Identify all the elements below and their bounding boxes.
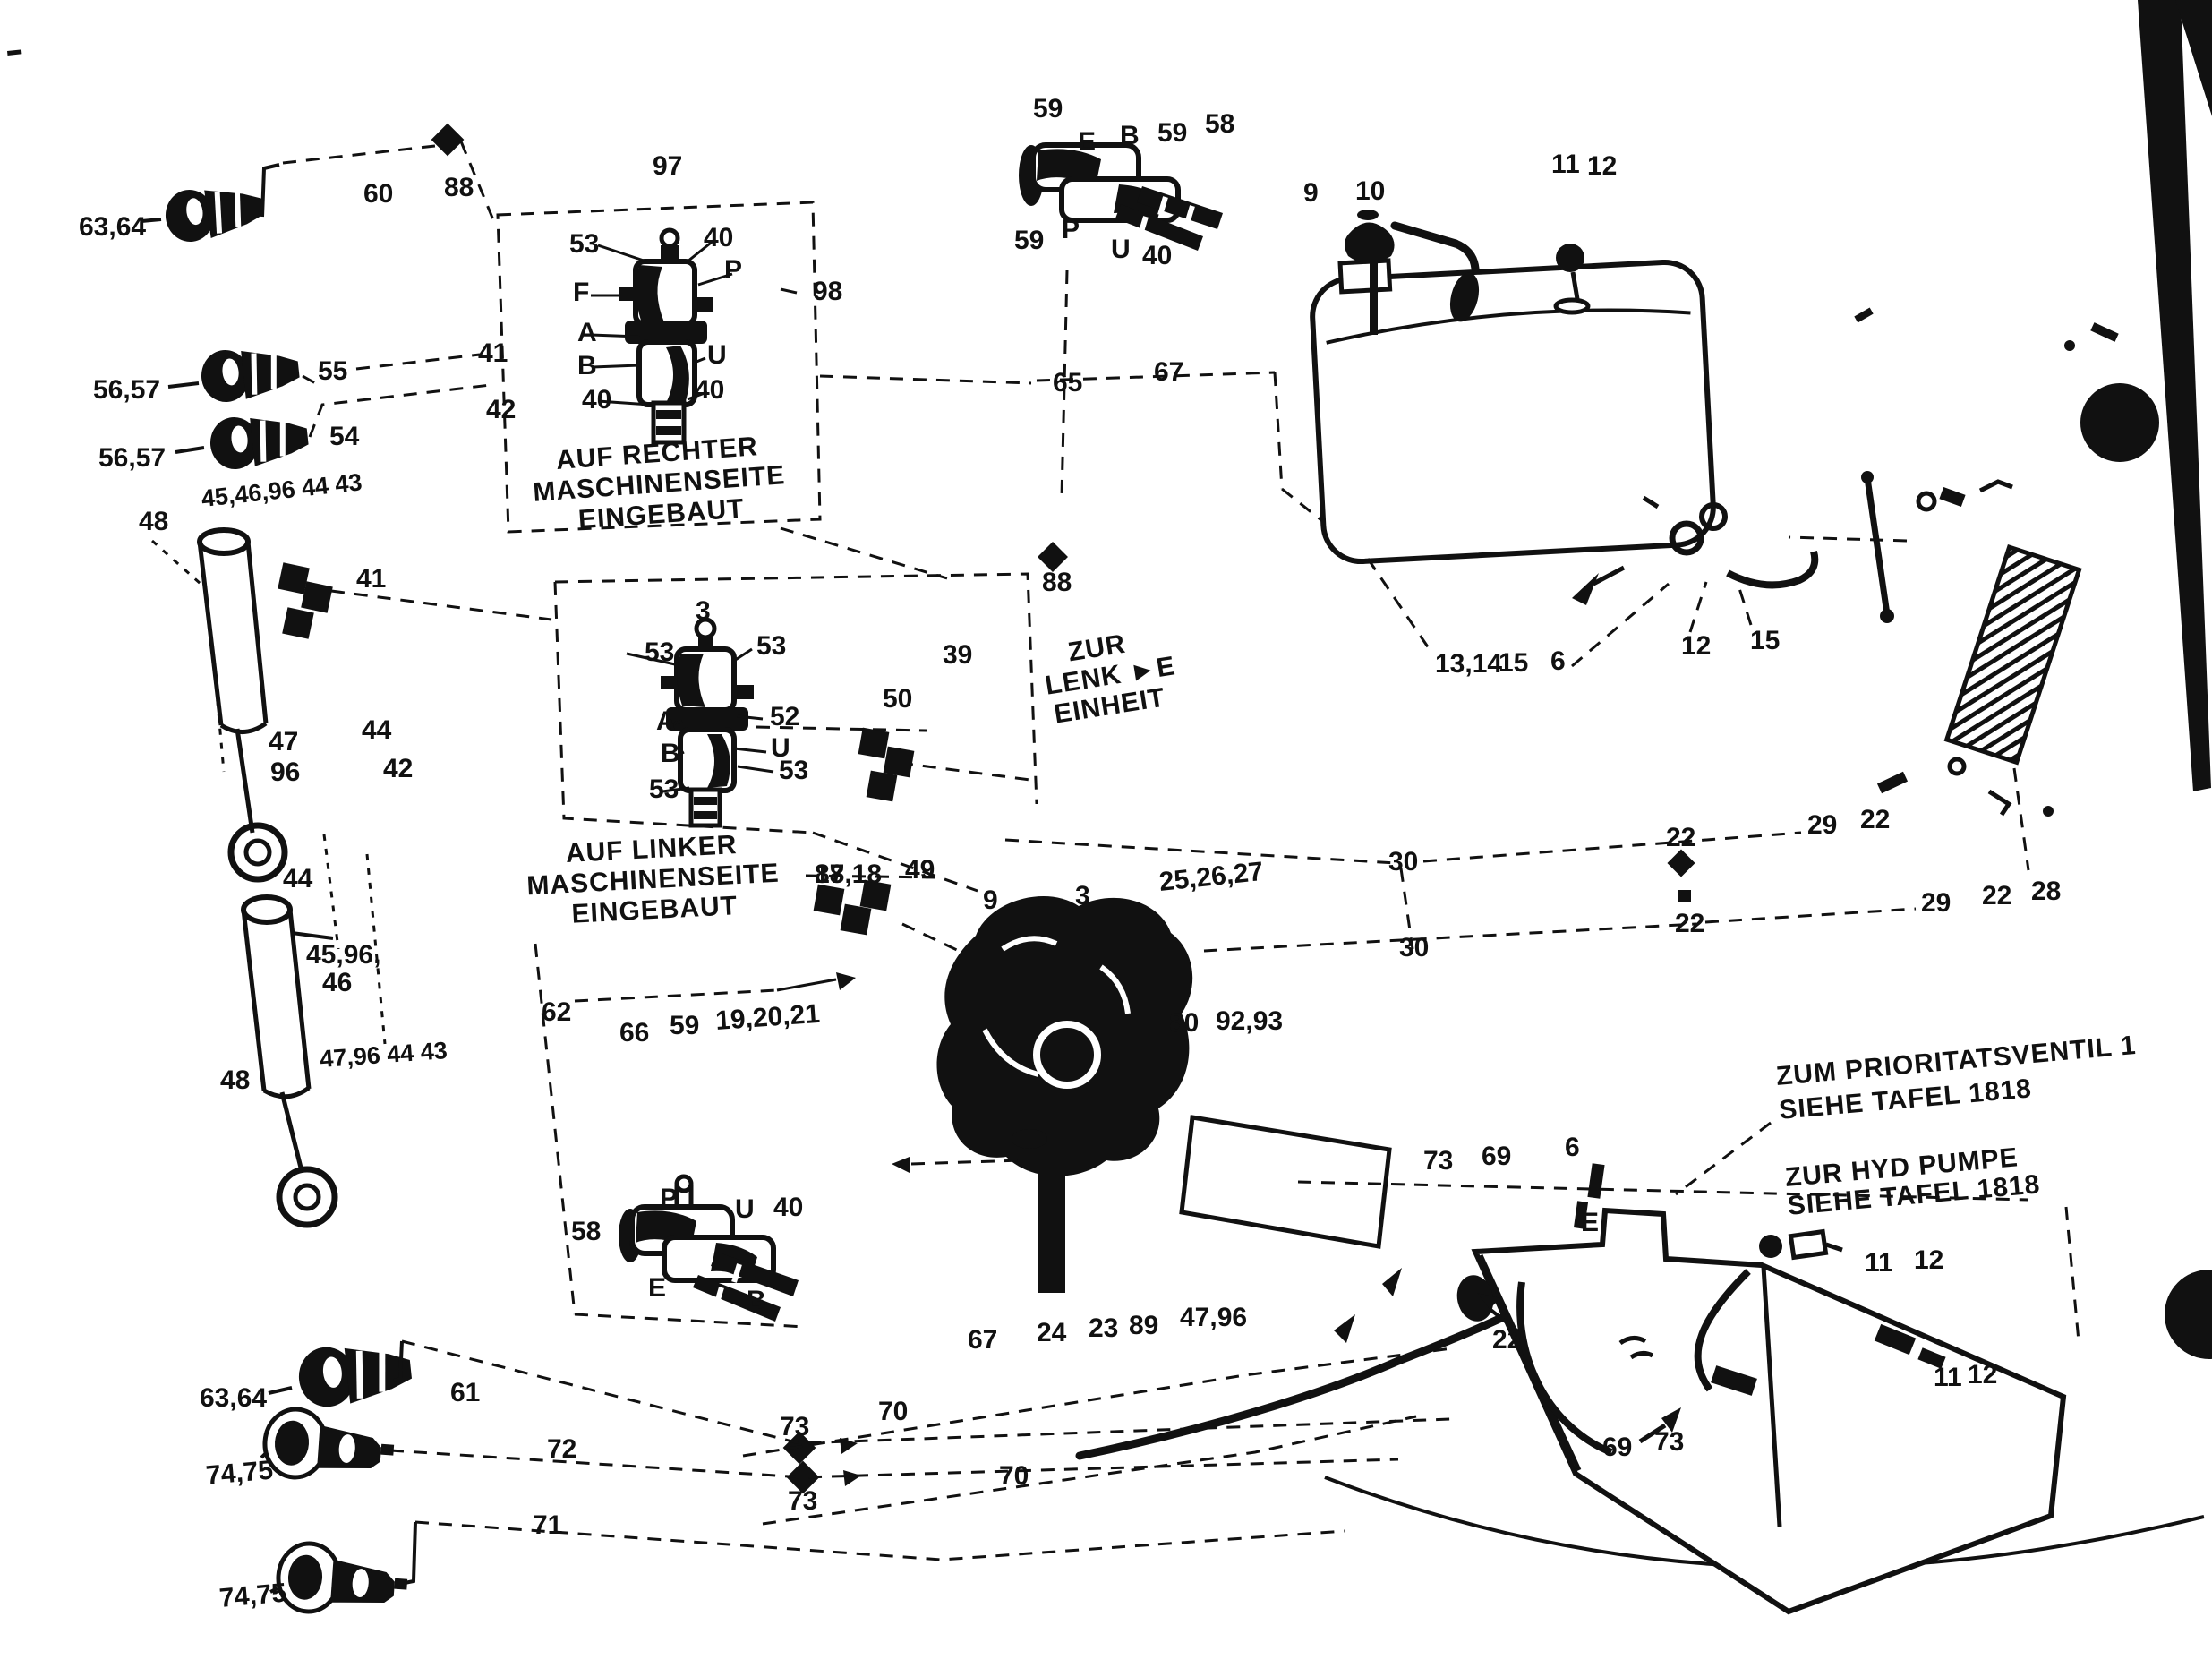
diamond-marker bbox=[431, 124, 465, 157]
fitting-74-75-upper bbox=[261, 1407, 396, 1484]
part-label: 48 bbox=[220, 1065, 250, 1095]
part-label: 41 bbox=[356, 564, 386, 594]
part-label: 6 bbox=[1565, 1133, 1580, 1162]
cylinder-lower bbox=[243, 834, 385, 1225]
dashed-link bbox=[1705, 909, 1916, 922]
part-label: 24 bbox=[1037, 1318, 1067, 1347]
cylinder-upper bbox=[152, 530, 551, 879]
part-label: 29 bbox=[1921, 888, 1951, 918]
port-label: A bbox=[656, 706, 676, 736]
part-label: 50 bbox=[883, 684, 912, 714]
hose bbox=[1038, 1157, 1065, 1293]
filler-cap-icon bbox=[1345, 222, 1395, 263]
part-label: 97 bbox=[653, 151, 682, 181]
part-label: 12 bbox=[1587, 151, 1617, 181]
fitting-63-64-top bbox=[141, 124, 494, 245]
part-label: 53 bbox=[645, 637, 674, 667]
part-label: 60 bbox=[363, 179, 393, 209]
part-label: 55 bbox=[318, 356, 347, 386]
square-fitting-icon bbox=[278, 562, 310, 594]
part-label: 59 bbox=[1157, 118, 1187, 148]
note-hyd-pump: ZUR HYD PUMPE SIEHE TAFEL 1818 bbox=[1784, 1141, 2042, 1220]
part-label: 42 bbox=[486, 395, 516, 424]
part-label: 42 bbox=[383, 754, 413, 783]
part-label: 62 bbox=[542, 997, 571, 1027]
part-label: 88 bbox=[444, 173, 474, 202]
dashed-link bbox=[1204, 924, 1696, 951]
port-label: B bbox=[1120, 121, 1140, 150]
hole-punch-icon bbox=[2165, 1270, 2212, 1359]
part-label: 63,64 bbox=[200, 1383, 267, 1413]
part-label: 53 bbox=[779, 756, 808, 785]
square-fittings-cluster bbox=[806, 728, 978, 960]
arrow-icon bbox=[843, 1470, 861, 1486]
part-label: 69 bbox=[1482, 1142, 1511, 1171]
arrow-icon bbox=[1572, 573, 1599, 605]
part-label: 45,96, bbox=[306, 940, 380, 970]
dashed-link bbox=[1005, 840, 1396, 863]
port-label: P bbox=[1062, 215, 1080, 244]
arrow-icon bbox=[1382, 1268, 1402, 1296]
part-label: 74,75 bbox=[205, 1456, 275, 1491]
port-label: U bbox=[1111, 235, 1131, 264]
part-label: 54 bbox=[329, 422, 360, 451]
part-label: 59 bbox=[1014, 226, 1044, 255]
part-label: 73 bbox=[1423, 1146, 1453, 1176]
part-label: 12 bbox=[1914, 1245, 1943, 1275]
part-label: 29 bbox=[1807, 810, 1837, 840]
port-label: E bbox=[1078, 127, 1096, 157]
part-label: 71 bbox=[533, 1510, 562, 1540]
note-priority-valve: ZUM PRIORITATSVENTIL 1 SIEHE TAFEL 1818 bbox=[1775, 1031, 2140, 1125]
part-label: 12 bbox=[1681, 631, 1711, 661]
part-label: 44 bbox=[283, 864, 313, 894]
breather-cap-icon bbox=[1556, 244, 1584, 272]
part-label: 40 bbox=[695, 375, 724, 405]
part-label: 11 bbox=[1865, 1248, 1893, 1278]
part-label: 53 bbox=[569, 229, 599, 259]
hole-punch-icon bbox=[2080, 383, 2159, 462]
part-label: 30 bbox=[1399, 933, 1429, 962]
part-label: 12 bbox=[1968, 1360, 1997, 1390]
suction-filter-group bbox=[1789, 308, 2119, 870]
port-label: B bbox=[747, 1286, 766, 1315]
part-label: 74,75 bbox=[218, 1578, 288, 1613]
dipstick bbox=[1370, 260, 1378, 335]
port-label: B bbox=[661, 739, 680, 768]
part-label: 89 bbox=[1129, 1311, 1158, 1340]
part-label: 65 bbox=[1053, 368, 1082, 398]
part-label: 3 bbox=[1075, 881, 1090, 911]
part-label: 98 bbox=[813, 277, 842, 306]
arrow-icon bbox=[892, 1157, 910, 1173]
part-label: 44 bbox=[362, 715, 392, 745]
dashed-link bbox=[1423, 833, 1801, 861]
port-label: U bbox=[707, 340, 727, 370]
arrow-icon bbox=[836, 972, 856, 990]
mount-bracket bbox=[1182, 1117, 1389, 1246]
part-label: 67 bbox=[968, 1325, 997, 1355]
part-label: 69 bbox=[1602, 1433, 1632, 1462]
part-label: 58 bbox=[571, 1217, 601, 1246]
part-label: 96 bbox=[270, 757, 300, 787]
diamond-marker bbox=[1667, 849, 1695, 877]
port-label: B bbox=[577, 351, 597, 381]
part-label: 61 bbox=[450, 1378, 480, 1407]
part-label: 47 bbox=[269, 727, 298, 757]
dashed-link bbox=[911, 1160, 1021, 1164]
port-label: P bbox=[660, 1184, 678, 1213]
part-label: 88 bbox=[1042, 568, 1072, 597]
port-label: P bbox=[724, 255, 742, 285]
part-label: 3 bbox=[696, 596, 711, 626]
port-label: A bbox=[577, 318, 597, 347]
port-label: U bbox=[735, 1194, 755, 1224]
part-label: 48 bbox=[139, 507, 168, 536]
part-label: 56,57 bbox=[98, 443, 166, 473]
part-label: 53 bbox=[756, 631, 786, 661]
part-label: 9 bbox=[983, 885, 998, 915]
part-label: 80 bbox=[1169, 1008, 1199, 1038]
square-fitting-icon bbox=[301, 581, 333, 613]
part-label: 56,57 bbox=[93, 375, 160, 405]
note-steering-unit: ZUR LENK ►E EINHEIT bbox=[1038, 622, 1182, 731]
part-label: 15 bbox=[1499, 648, 1528, 678]
part-label: 11 bbox=[1934, 1363, 1962, 1392]
port-label: F bbox=[573, 278, 589, 307]
fitting-63-64-bottom bbox=[269, 1339, 414, 1409]
square-fitting-icon bbox=[282, 607, 314, 639]
fitting-74-75-lower bbox=[270, 1522, 415, 1619]
arrow-icon bbox=[1334, 1314, 1355, 1343]
part-label: 58 bbox=[1205, 109, 1234, 139]
leader bbox=[777, 979, 836, 990]
part-label: 30 bbox=[1388, 847, 1418, 877]
dashed-link bbox=[820, 376, 1031, 383]
dashed-line-61 bbox=[402, 1341, 1450, 1443]
part-label: 45,46,96 44 43 bbox=[200, 468, 363, 512]
part-label: 22 bbox=[1860, 805, 1890, 834]
part-label: 23 bbox=[1089, 1313, 1118, 1343]
pump-assembly bbox=[937, 896, 1390, 1293]
part-label: 52 bbox=[770, 702, 799, 731]
part-label: 22 bbox=[1675, 909, 1704, 938]
part-label: 63,64 bbox=[79, 212, 146, 242]
dashed-line-70a bbox=[743, 1348, 1452, 1456]
part-label: 13,14 bbox=[1435, 649, 1502, 679]
part-label: 92,93 bbox=[1216, 1006, 1283, 1036]
part-label: 66 bbox=[619, 1018, 649, 1048]
part-label: 41 bbox=[478, 338, 508, 368]
part-label: 9 bbox=[1303, 178, 1319, 208]
part-label: 17,18 bbox=[815, 860, 882, 889]
filter-element bbox=[1947, 547, 2080, 762]
part-label: 39 bbox=[943, 640, 972, 670]
part-label: 11 bbox=[1551, 150, 1580, 179]
part-label: 25,26,27 bbox=[1157, 857, 1265, 897]
part-label: 46 bbox=[322, 968, 352, 997]
part-label: 28 bbox=[2031, 877, 2061, 906]
part-label: 47,96 44 43 bbox=[319, 1037, 448, 1073]
part-label: 6 bbox=[1550, 646, 1566, 676]
leader bbox=[781, 289, 797, 293]
port-label: E bbox=[648, 1273, 666, 1303]
part-label: 40 bbox=[1142, 241, 1172, 270]
rod-eye-icon bbox=[279, 1169, 335, 1225]
note-left-installed: AUF LINKER MASCHINENSEITE EINGEBAUT bbox=[525, 828, 781, 932]
part-label: 22 bbox=[1982, 881, 2011, 911]
part-label: 72 bbox=[547, 1434, 576, 1464]
part-label: 59 bbox=[1033, 94, 1063, 124]
part-label: 10 bbox=[1355, 176, 1385, 206]
part-label: 47,96 bbox=[1180, 1303, 1247, 1332]
part-label: 73 bbox=[1654, 1427, 1684, 1457]
part-label: 49 bbox=[905, 855, 935, 885]
part-label: 70 bbox=[878, 1397, 908, 1426]
dashed-link bbox=[900, 763, 1037, 781]
part-label: 19,20,21 bbox=[714, 999, 821, 1036]
valve-bottom bbox=[619, 1176, 799, 1322]
part-label: 40 bbox=[582, 385, 611, 415]
part-label: 67 bbox=[1154, 357, 1183, 387]
scanned-parts-diagram-page: 63,64 60 88 97 53 40 F P 98 A B U 40 40 bbox=[0, 0, 2212, 1668]
port-label: E bbox=[1581, 1208, 1599, 1237]
diagram-canvas: 63,64 60 88 97 53 40 F P 98 A B U 40 40 bbox=[0, 0, 2212, 1668]
part-label: 15 bbox=[1750, 626, 1780, 655]
rod-eye-icon bbox=[231, 825, 285, 879]
part-label: 22 bbox=[1492, 1325, 1522, 1355]
dashed-link bbox=[781, 528, 947, 578]
control-valve-right-side bbox=[591, 230, 732, 442]
part-label: 40 bbox=[704, 223, 733, 252]
part-label: 53 bbox=[649, 774, 679, 804]
square-marker bbox=[1678, 890, 1691, 902]
part-label: 40 bbox=[773, 1193, 803, 1222]
part-label: 22 bbox=[1666, 823, 1695, 852]
part-label: 59 bbox=[670, 1011, 699, 1040]
hydraulic-reservoir bbox=[1310, 210, 1815, 666]
